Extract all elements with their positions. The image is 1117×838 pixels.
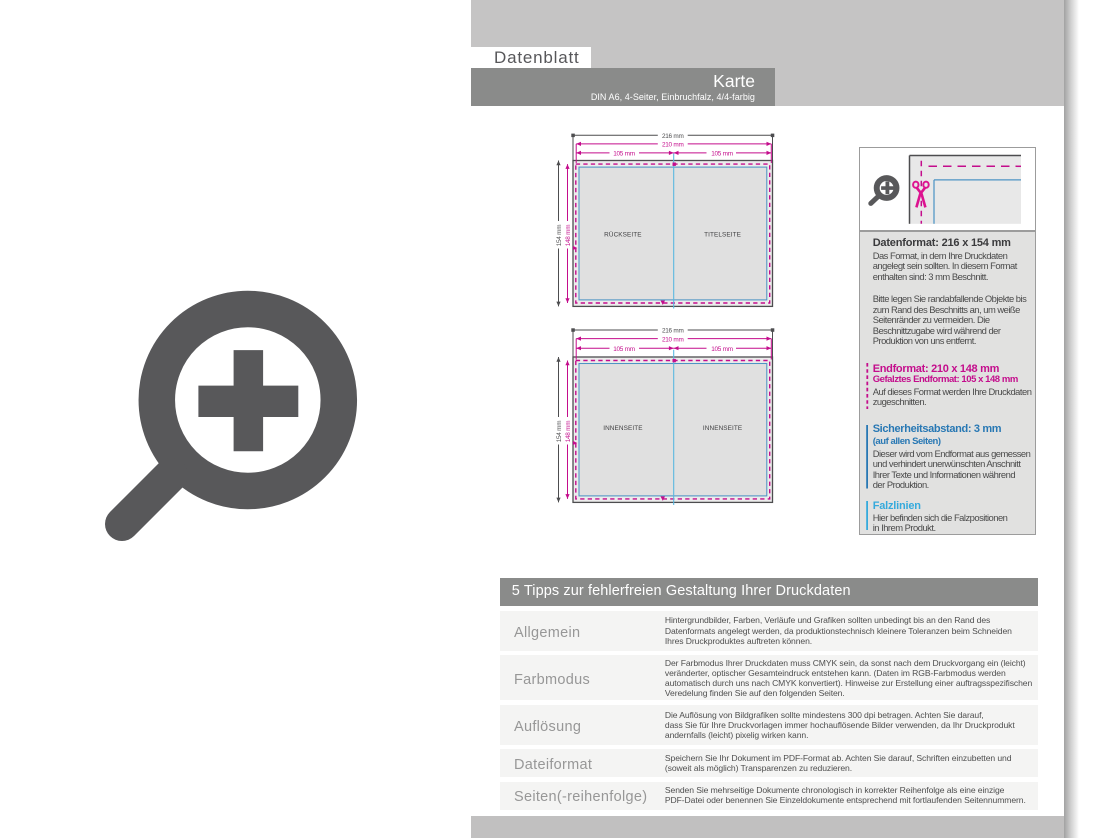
svg-text:148 mm: 148 mm: [565, 225, 572, 247]
svg-text:INNENSEITE: INNENSEITE: [703, 425, 742, 432]
svg-text:105 mm: 105 mm: [613, 346, 635, 353]
svg-text:154 mm: 154 mm: [556, 225, 563, 247]
svg-text:216 mm: 216 mm: [662, 328, 684, 335]
svg-text:INNENSEITE: INNENSEITE: [603, 425, 642, 432]
svg-text:105 mm: 105 mm: [711, 151, 733, 158]
svg-text:105 mm: 105 mm: [711, 346, 733, 353]
svg-text:210 mm: 210 mm: [662, 336, 684, 343]
svg-text:148 mm: 148 mm: [565, 421, 572, 443]
svg-text:RÜCKSEITE: RÜCKSEITE: [604, 231, 641, 239]
svg-text:216 mm: 216 mm: [662, 133, 684, 140]
svg-text:154 mm: 154 mm: [556, 421, 563, 443]
svg-text:210 mm: 210 mm: [662, 142, 684, 149]
svg-text:105 mm: 105 mm: [613, 151, 635, 158]
svg-text:TITELSEITE: TITELSEITE: [704, 232, 741, 239]
